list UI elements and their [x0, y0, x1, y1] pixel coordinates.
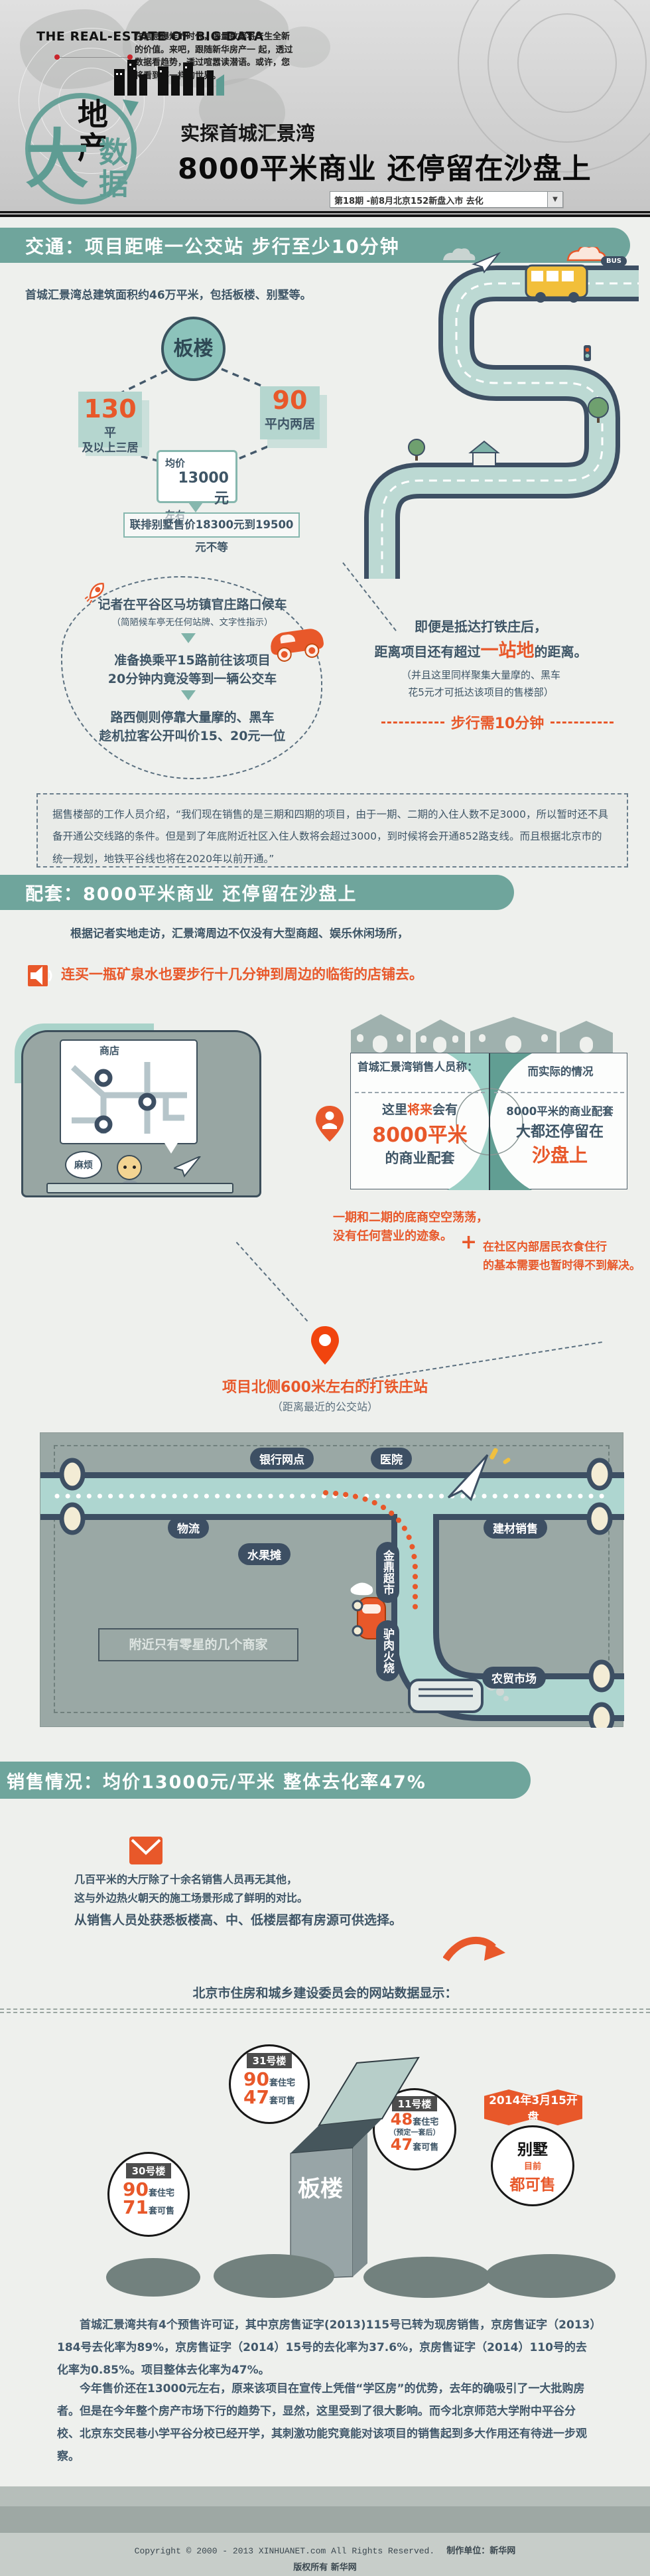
tower-31-n2: 47 — [243, 2086, 269, 2108]
comparison-divider — [489, 1053, 490, 1190]
arrive-post: 的距离。 — [535, 644, 588, 660]
villa-price-note-label: 联排别墅售价18300元到19500元不等 — [130, 518, 294, 554]
infographic-page: THE REAL-ESTATE OF BIG DATA 在信息爆炸的时代，海量数… — [0, 0, 650, 2576]
compare-right-line2: 大都还停留在 — [494, 1120, 625, 1141]
dropdown-arrow-button[interactable]: ▼ — [547, 192, 562, 207]
walk-time-note: 步行需10分钟 — [381, 712, 614, 733]
trouble-bubble: 麻烦 — [65, 1151, 102, 1179]
station-subtitle: （距离最近的公交站） — [0, 1398, 650, 1414]
divider — [494, 1092, 624, 1093]
avg-price-box: 均价 13000元 左右 — [157, 450, 237, 503]
dashed-rule — [381, 721, 444, 723]
walk-time-label: 步行需10分钟 — [451, 712, 545, 733]
map-note-text: 附近只有零星的几个商家 — [129, 1637, 267, 1652]
villa-sub: 目前 — [493, 2159, 572, 2172]
map-pin-icon — [309, 1325, 341, 1366]
buildings-silhouette-icon — [111, 57, 224, 96]
plus-note-line2: 的基本需要也暂时得不到解决。 — [483, 1256, 641, 1272]
cmp-left-post: 会有 — [432, 1102, 458, 1117]
compare-right-line1: 8000平米的商业配套 — [494, 1102, 625, 1118]
building-3d-icon — [283, 2051, 422, 2283]
bush-icon — [214, 2254, 334, 2298]
arrive-line2: 距离项目还有超过一站地的距离。 — [345, 636, 617, 662]
logo-text-teal: 数据 — [89, 137, 131, 200]
divider — [0, 211, 650, 217]
issue-dropdown[interactable]: 第18期 -前8月北京152新盘入市 去化 ▼ — [330, 191, 563, 208]
step1-text: 记者在平谷区马坊镇官庄路口候车 — [73, 595, 312, 613]
double-dashed-divider — [0, 2008, 650, 2013]
hall-line3: 从销售人员处获悉板楼高、中、低楼层都有房源可供选择。 — [74, 1910, 402, 1928]
building-type-label: 板楼 — [174, 337, 214, 360]
empty-shops-line1: 一期和二期的底商空空荡荡， — [333, 1208, 488, 1225]
bubble-tail — [164, 1143, 178, 1154]
arrive-note-line2: 花5元才可抵达该项目的售楼部） — [361, 685, 600, 699]
comparison-box: 首城汇景湾销售人员称： 这里将来会有 8000平米 的商业配套 而实际的情况 8… — [350, 1053, 627, 1189]
step2-line2: 20分钟内竟没等到一辆公交车 — [73, 669, 312, 687]
compare-left-tail: 的商业配套 — [354, 1148, 486, 1168]
villa-title: 别墅 — [493, 2137, 572, 2159]
compare-left-title: 首城汇景湾销售人员称： — [357, 1060, 484, 1074]
unit-130-number: 130 — [84, 394, 136, 423]
closing-paragraph-2: 今年售价还在13000元左右，原来该项目在宣传上凭借“学区房”的优势，去年的确吸… — [57, 2378, 596, 2468]
map-label-fruit: 水果摊 — [238, 1543, 291, 1565]
section-heading-sales: 销售情况：均价13000元/平米 整体去化率47% — [0, 1762, 531, 1799]
dashed-trail — [236, 1242, 308, 1322]
price-box-tail — [188, 502, 203, 512]
opening-flag-label: 2014年3月15开盘 — [484, 2091, 582, 2124]
compare-right-highlight: 沙盘上 — [494, 1141, 625, 1168]
cmp-left-hl: 将来 — [407, 1102, 432, 1117]
bush-icon — [106, 2258, 200, 2297]
cloud-icon — [443, 248, 475, 260]
footer-copyright: Copyright © 2000 - 2013 XINHUANET.com Al… — [135, 2546, 434, 2556]
unit-130-sub: 及以上三居 — [78, 438, 142, 455]
map-label-materials: 建材销售 — [484, 1517, 547, 1539]
footer: Copyright © 2000 - 2013 XINHUANET.com Al… — [0, 2533, 650, 2576]
arrive-line1: 即便是抵达打铁庄后， — [371, 616, 590, 635]
map-label-fruit-text: 水果摊 — [247, 1549, 281, 1562]
closing-paragraph-1: 首城汇景湾共有4个预售许可证，其中京房售证字(2013)115号已转为现房销售，… — [57, 2314, 596, 2382]
tower-30-n2: 71 — [123, 2196, 149, 2218]
page-title: 8000平米商业 还停留在沙盘上 — [178, 146, 592, 187]
shop-label: 商店 — [99, 1043, 119, 1057]
compare-right-title: 而实际的情况 — [495, 1063, 625, 1079]
unit-90-sub: 平内两居 — [260, 414, 320, 432]
villa-highlight: 都可售 — [493, 2172, 572, 2194]
compare-left-line1: 这里将来会有 — [354, 1100, 486, 1118]
cmp-left-pre: 这里 — [382, 1102, 407, 1117]
dashed-rule — [551, 721, 614, 723]
character-eye — [133, 1166, 136, 1169]
bus-stop-sign-label: BUS — [606, 258, 621, 265]
section-heading-amenities: 配套：8000平米商业 还停留在沙盘上 — [0, 875, 514, 910]
tower-30-u2: 套可售 — [149, 2206, 174, 2216]
character-head — [117, 1155, 142, 1180]
arrow-down-icon — [181, 690, 196, 700]
map-label-donkey-text: 驴肉火烧 — [381, 1628, 394, 1673]
divider — [355, 1092, 485, 1093]
cloud-icon — [568, 247, 605, 260]
section-heading-amenities-label: 配套：8000平米商业 还停留在沙盘上 — [25, 879, 357, 905]
building-3d-label: 板楼 — [292, 2170, 349, 2203]
data-source-line: 北京市住房和城乡建设委员会的网站数据显示： — [0, 1983, 650, 2001]
arrive-highlight: 一站地 — [481, 641, 535, 661]
footer-bar — [0, 2486, 650, 2506]
desk — [46, 1183, 233, 1193]
step3-line1: 路西侧则停靠大量摩的、黑车 — [73, 708, 312, 725]
map-label-donkey: 驴肉火烧 — [376, 1620, 399, 1681]
emp​ty-shops-line2: 没有任何营业的迹象。 — [333, 1227, 452, 1244]
tower-30-name: 30号楼 — [126, 2163, 172, 2178]
sales-office-quote: 据售楼部的工作人员介绍，“我们现在销售的是三期和四期的项目，由于一期、二期的入住… — [36, 793, 628, 868]
person-pin-icon — [314, 1104, 345, 1143]
logo-text-big: 大 — [25, 127, 89, 191]
unit-90-number: 90 — [260, 388, 320, 414]
hall-line2: 这与外边热火朝天的施工场景形成了鲜明的对比。 — [74, 1889, 308, 1905]
houses-icon — [348, 1013, 626, 1053]
bus-stop-sign: BUS — [601, 256, 627, 266]
map-speech-bubble: 商店 — [60, 1039, 198, 1144]
amenities-intro: 根据记者实地走访，汇景湾周边不仅没有大型商超、娱乐休闲场所， — [70, 924, 409, 941]
map-label-hospital: 医院 — [371, 1448, 412, 1470]
curved-arrow-icon — [443, 1934, 509, 1971]
map-label-logistics-text: 物流 — [177, 1523, 200, 1536]
page-subtitle: 实探首城汇景湾 — [180, 118, 315, 146]
map-label-logistics: 物流 — [168, 1517, 209, 1539]
neighborhood-map: 银行网点 医院 物流 建材销售 水果摊 金鼎超市 驴肉火烧 农贸市场 附近只有零… — [40, 1432, 623, 1727]
map-label-hospital-text: 医院 — [380, 1454, 403, 1467]
globe-wireframe-icon — [517, 13, 617, 113]
station-title: 项目北侧600米左右的打铁庄站 — [0, 1375, 650, 1397]
section-heading-sales-label: 销售情况：均价13000元/平米 整体去化率47% — [7, 1768, 426, 1793]
red-dot-icon — [54, 54, 60, 60]
bush-icon — [486, 2254, 616, 2298]
tower-bubble-30: 30号楼 90套住宅 71套可售 — [107, 2152, 190, 2237]
map-note-box: 附近只有零星的几个商家 — [98, 1628, 298, 1661]
map-label-bank-text: 银行网点 — [259, 1454, 304, 1467]
avg-price-l1: 均价 — [165, 456, 229, 470]
trouble-label: 麻烦 — [74, 1160, 93, 1171]
paper-plane-icon — [174, 1156, 202, 1177]
map-label-supermarket: 金鼎超市 — [376, 1542, 399, 1603]
map-label-bank: 银行网点 — [250, 1448, 314, 1470]
sales-office-quote-text: 据售楼部的工作人员介绍，“我们现在销售的是三期和四期的项目，由于一期、二期的入住… — [52, 808, 608, 865]
issue-dropdown-value[interactable]: 第18期 -前8月北京152新盘入市 去化 — [330, 192, 547, 207]
plus-note-line1: 在社区内部居民衣食住行 — [483, 1237, 607, 1254]
map-label-farmers: 农贸市场 — [482, 1667, 546, 1689]
villa-bubble: 别墅 目前 都可售 — [491, 2125, 574, 2206]
arrive-pre: 距离项目还有超过 — [375, 644, 481, 660]
compare-left-big: 8000平米 — [354, 1118, 486, 1148]
footer-rights: 版权所有 新华网 — [0, 2560, 650, 2573]
plus-sign: + — [460, 1231, 477, 1254]
building-type-circle: 板楼 — [161, 317, 226, 381]
arrive-note-line1: （并且这里同样聚集大量摩的、黑车 — [361, 668, 600, 682]
unit-90-box: 90 平内两居 — [260, 386, 320, 439]
map-label-supermarket-text: 金鼎超市 — [381, 1550, 394, 1595]
footer-producer: 制作单位：新华网 — [446, 2546, 515, 2556]
arrow-down-icon — [181, 633, 196, 643]
amenities-highlight: 连买一瓶矿泉水也要步行十几分钟到周边的临街的店铺去。 — [61, 964, 423, 984]
villa-price-note: 联排别墅售价18300元到19500元不等 — [123, 512, 300, 538]
envelope-icon — [129, 1836, 163, 1865]
unit-130-box: 130平 及以上三居 — [78, 392, 142, 447]
map-label-farmers-text: 农贸市场 — [491, 1673, 537, 1686]
car-icon — [269, 623, 328, 668]
footer-bar — [0, 2506, 650, 2533]
hall-line1: 几百平米的大厅除了十余名销售人员再无其他， — [74, 1870, 297, 1886]
opening-flag: 2014年3月15开盘 — [484, 2089, 582, 2125]
map-label-materials-text: 建材销售 — [493, 1523, 538, 1536]
speaker-icon — [27, 961, 56, 990]
step3-line2: 趁机拉客公开叫价15、20元一位 — [73, 726, 312, 744]
character-eye — [123, 1166, 127, 1169]
step1-subtext: （简陋候车亭无任何站牌、文字性指示） — [73, 615, 312, 628]
bush-icon — [363, 2257, 491, 2298]
mini-map-icon — [66, 1058, 192, 1140]
